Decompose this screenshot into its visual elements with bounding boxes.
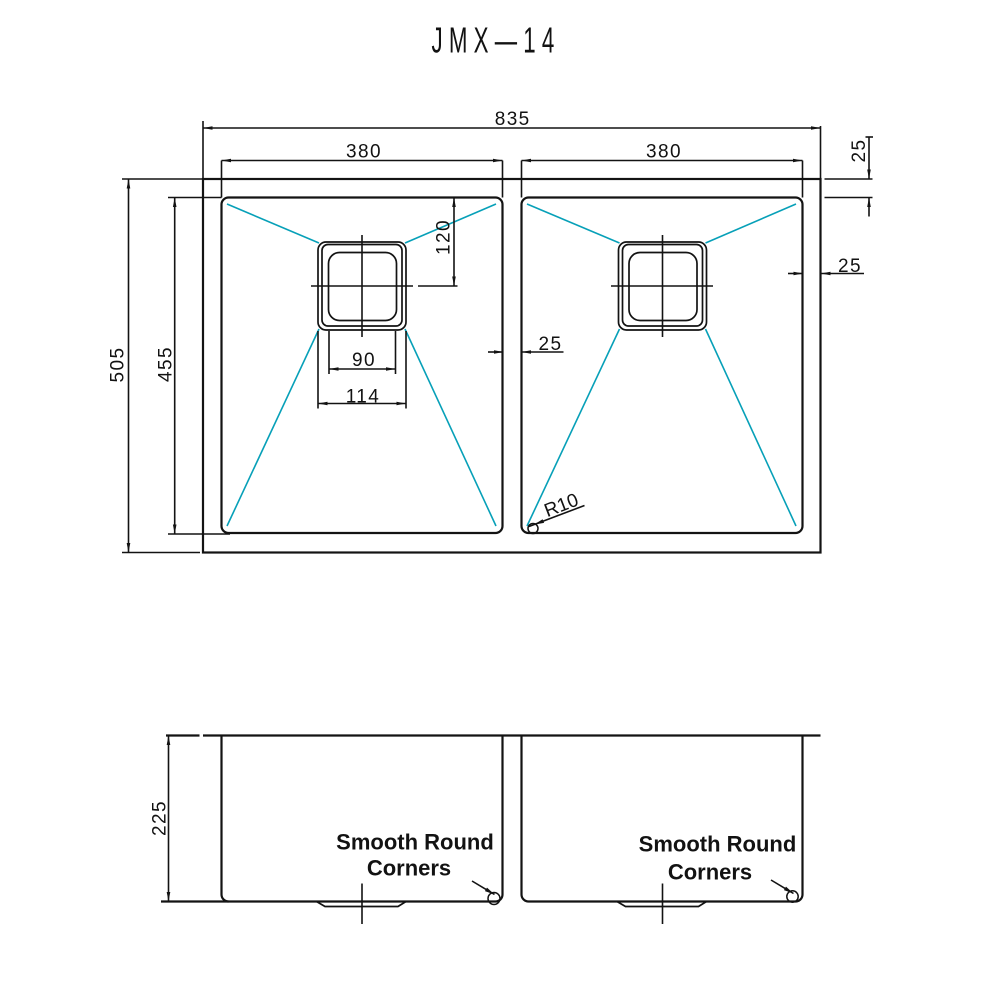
svg-text:25: 25 xyxy=(849,139,870,163)
svg-text:JMX—14: JMX—14 xyxy=(432,21,561,61)
svg-text:380: 380 xyxy=(346,142,382,163)
svg-text:90: 90 xyxy=(352,350,376,371)
svg-text:380: 380 xyxy=(646,142,682,163)
svg-text:225: 225 xyxy=(150,800,171,836)
svg-text:Smooth Round: Smooth Round xyxy=(639,832,797,857)
svg-text:455: 455 xyxy=(156,346,177,382)
svg-text:25: 25 xyxy=(838,256,862,277)
svg-text:Corners: Corners xyxy=(668,860,752,885)
svg-text:Smooth Round: Smooth Round xyxy=(336,830,494,855)
svg-text:114: 114 xyxy=(346,387,381,408)
svg-text:120: 120 xyxy=(434,219,455,255)
svg-text:505: 505 xyxy=(108,347,129,383)
svg-text:25: 25 xyxy=(539,334,563,355)
svg-text:Corners: Corners xyxy=(367,856,451,881)
svg-text:835: 835 xyxy=(495,109,531,130)
